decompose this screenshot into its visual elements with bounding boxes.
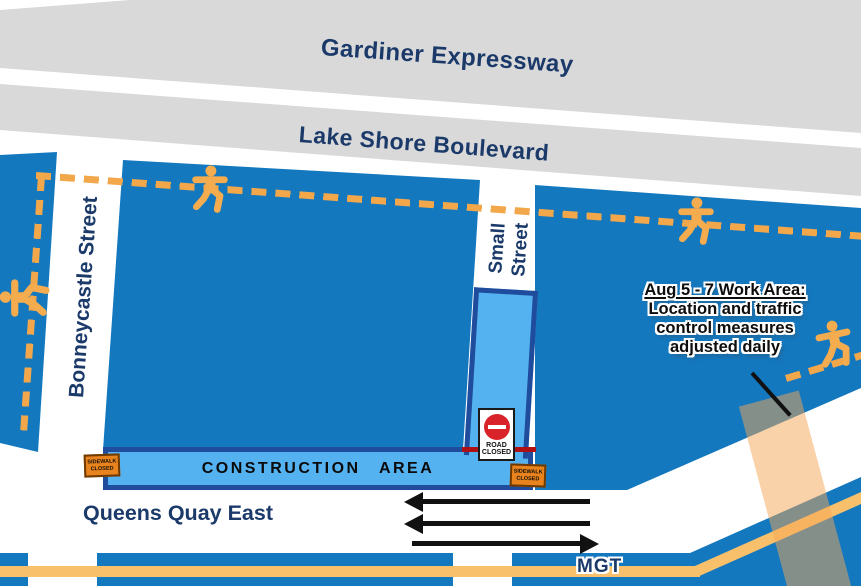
traffic-arrow-west-1-shaft <box>420 499 590 504</box>
sidewalk-closed-text-2: CLOSED <box>516 475 539 482</box>
pedestrian-icon-north-east <box>676 197 716 246</box>
road-closed-text-1: ROAD <box>482 442 511 449</box>
sidewalk-closed-text-2: CLOSED <box>91 465 114 472</box>
pedestrian-icon-north-west <box>190 165 230 214</box>
road-closed-text-2: CLOSED <box>482 449 511 456</box>
traffic-arrow-east-head <box>580 534 599 554</box>
road-closed-sign: ROAD CLOSED <box>478 408 515 461</box>
queens-quay-label: Queens Quay East <box>83 501 273 526</box>
small-street-label-line2: Street <box>507 217 534 282</box>
work-area-callout: Aug 5 - 7 Work Area: Location and traffi… <box>612 281 838 357</box>
callout-line-4: adjusted daily <box>612 338 838 357</box>
traffic-arrow-west-2-shaft <box>420 521 590 526</box>
callout-line-3: control measures <box>612 319 838 338</box>
traffic-map: CONSTRUCTION AREA R <box>0 0 861 586</box>
traffic-arrow-west-2-head <box>404 514 423 534</box>
bonneycastle-street-label: Bonneycastle Street <box>65 191 104 402</box>
traffic-arrow-west-1-head <box>404 492 423 512</box>
callout-line-2: Location and traffic <box>612 300 838 319</box>
pedestrian-icon-west <box>0 277 51 319</box>
small-street-label: Small Street <box>484 215 534 282</box>
mgt-label: MGT <box>577 556 622 578</box>
sidewalk-closed-sign-west: SIDEWALK CLOSED <box>84 453 121 477</box>
callout-line-1: Aug 5 - 7 Work Area: <box>612 281 838 300</box>
construction-area-label: CONSTRUCTION AREA <box>108 452 528 485</box>
sidewalk-closed-sign-east: SIDEWALK CLOSED <box>510 463 547 487</box>
traffic-arrow-east-shaft <box>412 541 582 546</box>
no-entry-icon <box>484 414 510 440</box>
